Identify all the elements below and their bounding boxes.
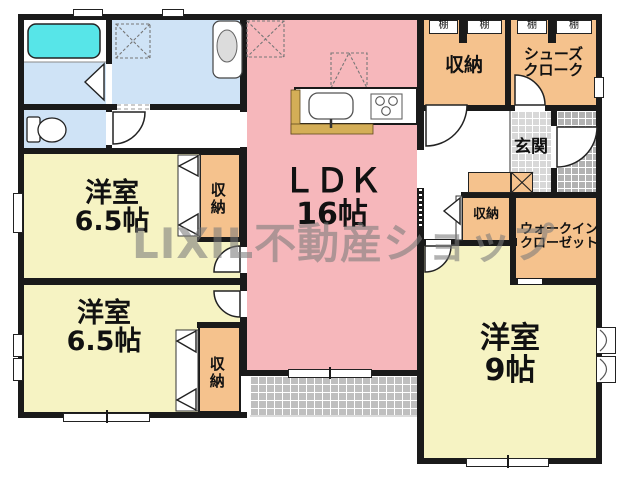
bedroom1-name: 洋室 [24,180,200,208]
opening-bath-door [106,64,112,104]
window-bathroom-top [73,9,103,17]
label-bedroom2: 洋室 6.5帖 [24,300,184,357]
hall-storage-door-triangle [444,198,460,224]
floor-plan: 洋室 6.5帖 洋室 6.5帖 ＬＤＫ 16帖 洋室 9帖 収納 収納 収納 シ… [0,0,632,480]
label-bedroom1: 洋室 6.5帖 [24,180,200,237]
shoe-cabinet-x [511,172,533,193]
opening-shoe-closet-door [515,105,545,111]
label-entrance: 玄関 [506,139,556,157]
bathroom-lower-floor [24,62,106,104]
window-shoe-closet-right [594,77,604,98]
label-hall-storage: 収納 [461,208,511,222]
terrace [250,376,417,417]
opening-storage-door [426,105,467,111]
shoe-closet-line2: クローク [511,63,596,79]
label-closet1: 収納 [209,172,225,226]
label-shelf-4: 棚 [556,21,592,32]
ldk-size: 16帖 [247,199,417,231]
ldk-name: ＬＤＫ [247,164,417,199]
bedroom1-size: 6.5帖 [24,208,200,236]
label-ldk: ＬＤＫ 16帖 [247,164,417,230]
wall-mid-left [18,278,247,285]
opening-ldk-hall2 [417,150,424,188]
label-shelf-3: 棚 [517,21,547,32]
wic-line2: クローゼット [516,237,602,251]
opening-bedroom9-door [426,240,451,246]
toilet-room-floor [24,110,106,148]
window-bedroom9-right-2 [596,356,616,383]
label-bedroom9: 洋室 9帖 [424,323,596,386]
opening-washroom-hall [117,104,150,110]
bedroom2-size: 6.5帖 [24,328,184,356]
opening-hall1-ldk [240,112,247,147]
shoe-cabinet [468,172,511,193]
opening-bedroom2-door [240,291,247,317]
wall-shelf-stub-1 [459,14,467,43]
opening-bedroom1-door [240,247,247,273]
window-tick-3 [329,367,331,379]
label-wic: ウォークイン クローゼット [516,223,602,250]
bedroom9-name: 洋室 [424,323,596,355]
washroom-floor [112,20,240,104]
bedroom9-size: 9帖 [424,355,596,387]
window-tick-1 [106,410,108,423]
window-bedroom9-right-1 [596,327,616,354]
sliding-door-marks [419,189,422,228]
wic-line1: ウォークイン [516,223,602,237]
window-bedroom2-left-2 [13,358,23,381]
label-storage-top: 収納 [423,56,505,76]
opening-toilet-door [106,112,112,145]
window-tick-2 [507,455,509,468]
window-bedroom1-left [13,193,23,233]
window-washroom-top [162,9,184,17]
storage-door-arc [426,105,467,146]
label-closet2: 収納 [208,346,224,400]
wall-shelf-stub-2 [548,14,556,43]
window-bedroom2-left-1 [13,334,23,357]
label-shoe-closet: シューズ クローク [511,47,596,79]
bedroom2-name: 洋室 [24,300,184,328]
label-shelf-2: 棚 [467,21,502,32]
toilet-door-arc [113,112,145,144]
bathroom-upper-floor [24,20,106,62]
opening-wic [518,279,542,284]
label-shelf-1: 棚 [429,21,458,32]
